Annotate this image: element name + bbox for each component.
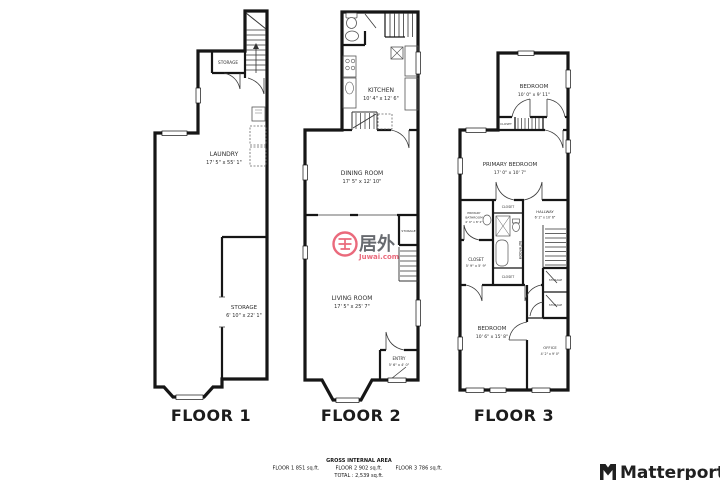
room-label-primary-bathroom-1: PRIMARY xyxy=(467,211,480,215)
room-label-storage-a: STORAGE xyxy=(549,278,563,282)
room-dims-laundry: 17' 5" x 55' 1" xyxy=(206,160,242,166)
floorplan-page: STORAGE LAUNDRY 17' 5" x 55' 1" STORAGE … xyxy=(0,0,720,480)
room-label-hallway: HALLWAY xyxy=(536,209,554,214)
sink-icon xyxy=(346,31,359,41)
room-dims-living: 17' 5" x 25' 7" xyxy=(334,304,370,310)
room-label-bedroom-top: BEDROOM xyxy=(520,84,549,90)
footer-heading: GROSS INTERNAL AREA xyxy=(326,458,392,464)
matterport-logo: Matterport xyxy=(600,463,720,480)
room-dims-storage-lower: 6' 10" x 22' 1" xyxy=(226,313,262,319)
floor2-label: FLOOR 2 xyxy=(321,406,401,425)
watermark-site: Juwai.com xyxy=(358,253,399,261)
room-label-kitchen: KITCHEN xyxy=(368,87,394,94)
floor1-plan: STORAGE LAUNDRY 17' 5" x 55' 1" STORAGE … xyxy=(155,11,267,425)
matterport-m-icon xyxy=(600,464,616,480)
room-dims-primary-bathroom: 4' 9" x 8' 2" xyxy=(465,220,483,224)
room-dims-primary-bedroom: 17' 0" x 10' 7" xyxy=(494,170,526,176)
room-label-living: LIVING ROOM xyxy=(332,295,373,302)
matterport-wordmark: Matterport xyxy=(620,463,720,480)
room-label-storage-b: STORAGE xyxy=(549,303,563,307)
room-label-closet-primary: CLOSET xyxy=(468,257,484,262)
floor3-plan: BEDROOM 10' 0" x 9' 11" CLOSET PRIMARY B… xyxy=(458,51,571,425)
room-label-laundry: LAUNDRY xyxy=(210,151,239,158)
room-label-storage-lower: STORAGE xyxy=(231,305,258,311)
floor-plan-canvas: STORAGE LAUNDRY 17' 5" x 55' 1" STORAGE … xyxy=(0,0,720,480)
footer-total-area: TOTAL : 2,539 sq.ft. xyxy=(333,473,384,479)
floor2-plan: KITCHEN 10' 4" x 12' 6" DINING ROOM 17' … xyxy=(303,12,421,425)
room-label-closet-bottom: CLOSET xyxy=(502,275,514,279)
room-label-closet-landing: CLOSET xyxy=(500,122,512,126)
room-label-primary-bedroom: PRIMARY BEDROOM xyxy=(483,162,538,168)
room-dims-bedroom-top: 10' 0" x 9' 11" xyxy=(518,92,550,98)
watermark-brand: 居外 xyxy=(359,233,395,255)
footer-floor3-area: FLOOR 3 786 sq.ft. xyxy=(396,466,443,472)
room-dims-office: 4' 2" x 9' 0" xyxy=(541,352,560,356)
room-label-bathroom: BATHROOM xyxy=(518,241,522,260)
room-label-storage-f2: STORAGE xyxy=(401,229,415,233)
footer-floor2-area: FLOOR 2 902 sq.ft. xyxy=(336,466,383,472)
toilet-icon xyxy=(347,18,357,29)
room-label-primary-bathroom-2: BATHROOM xyxy=(465,216,483,220)
room-dims-entry: 5' 6" x 4' 0" xyxy=(389,363,410,367)
footer-floor1-area: FLOOR 1 851 sq.ft. xyxy=(273,466,320,472)
room-label-bedroom-bottom: BEDROOM xyxy=(478,326,507,332)
room-dims-hallway: 6' 2" x 10' 6" xyxy=(535,216,556,220)
room-label-closet-top: CLOSET xyxy=(502,205,514,209)
room-dims-closet-primary: 5' 9" x 5' 9" xyxy=(466,264,487,268)
floor3-stairs-top-icon xyxy=(518,118,539,129)
room-dims-kitchen: 10' 4" x 12' 6" xyxy=(363,96,399,102)
gross-internal-area: GROSS INTERNAL AREA FLOOR 1 851 sq.ft. F… xyxy=(273,458,443,479)
room-dims-bedroom-bottom: 10' 6" x 15' 8" xyxy=(476,334,508,340)
floor3-label: FLOOR 3 xyxy=(474,406,554,425)
room-label-entry: ENTRY xyxy=(393,356,406,361)
floor1-label: FLOOR 1 xyxy=(171,406,251,425)
room-label-storage-upper: STORAGE xyxy=(218,60,238,65)
room-label-dining: DINING ROOM xyxy=(341,170,383,177)
room-dims-dining: 17' 5" x 12' 10" xyxy=(343,179,382,185)
floor2-outer-walls xyxy=(305,12,418,400)
room-label-office: OFFICE xyxy=(543,345,557,350)
